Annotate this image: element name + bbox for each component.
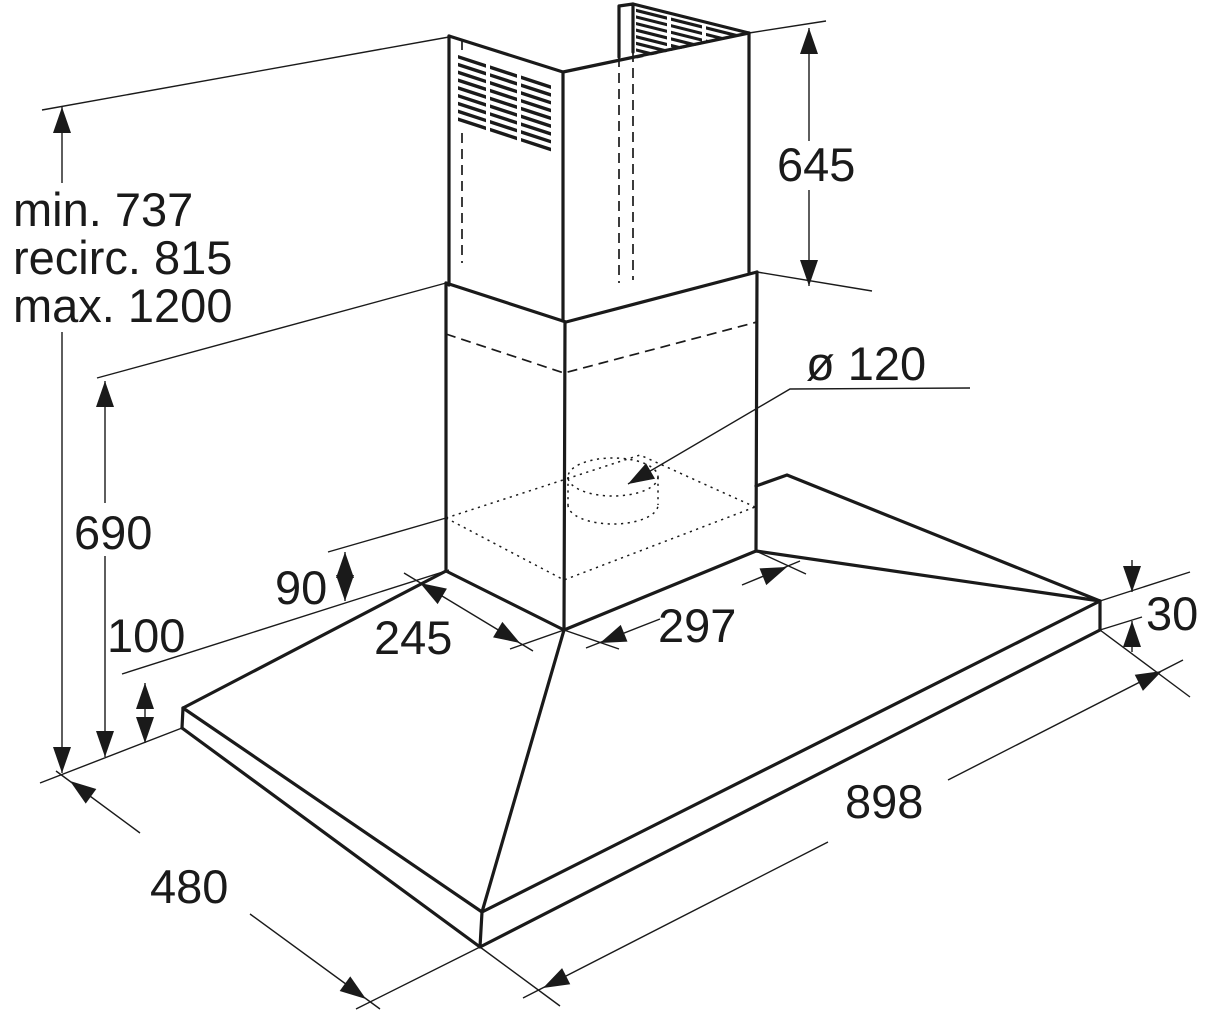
canopy-left-edge-label: 245 bbox=[374, 611, 452, 664]
plate-depth-label: 480 bbox=[150, 860, 228, 913]
mount-min-label: min. 737 bbox=[13, 183, 193, 236]
hood-dimension-drawing: min. 737 recirc. 815 max. 1200 645 ø 120… bbox=[0, 0, 1207, 1026]
lower-right-edge bbox=[756, 272, 757, 551]
plate-thickness-label: 30 bbox=[1146, 587, 1198, 640]
dimension-drawing-page: min. 737 recirc. 815 max. 1200 645 ø 120… bbox=[0, 0, 1207, 1026]
chimney-height-label: 645 bbox=[777, 138, 855, 191]
canopy-right-edge-label: 297 bbox=[658, 599, 736, 652]
mount-max-label: max. 1200 bbox=[13, 279, 232, 332]
corner-height-label: 100 bbox=[107, 609, 185, 662]
mount-recirc-label: recirc. 815 bbox=[13, 231, 232, 284]
hood-height-label: 690 bbox=[74, 506, 152, 559]
plate-left-corner-edge bbox=[182, 708, 183, 728]
lower-near-edge bbox=[564, 322, 565, 630]
plate-width-label: 898 bbox=[845, 775, 923, 828]
plate-front-corner-edge bbox=[480, 912, 482, 947]
duct-diameter-label: ø 120 bbox=[806, 337, 926, 390]
rim-height-label: 90 bbox=[275, 561, 327, 614]
